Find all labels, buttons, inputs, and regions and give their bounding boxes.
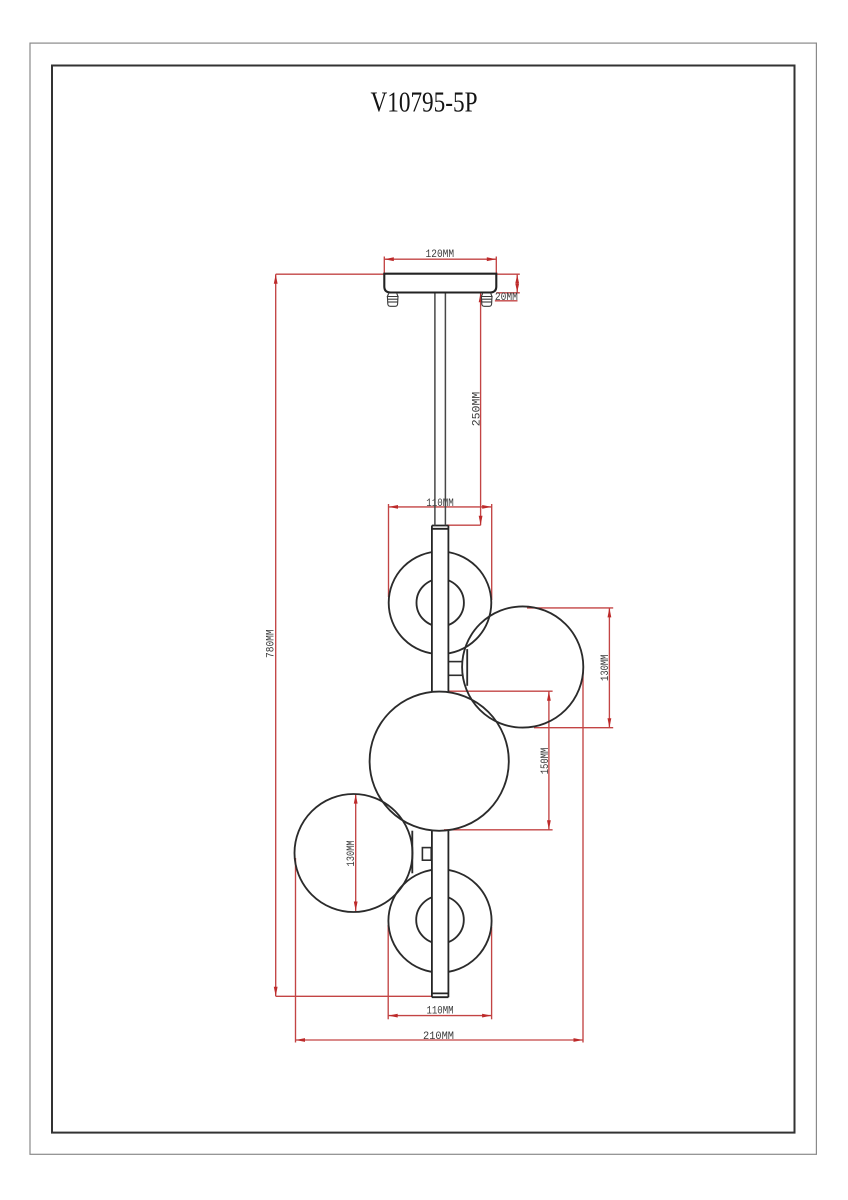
svg-text:210MM: 210MM bbox=[423, 1031, 454, 1043]
svg-text:V10795-5P: V10795-5P bbox=[371, 87, 478, 118]
svg-text:110MM: 110MM bbox=[427, 1006, 454, 1018]
svg-text:780MM: 780MM bbox=[265, 629, 277, 658]
svg-text:130MM: 130MM bbox=[346, 840, 358, 866]
svg-text:110MM: 110MM bbox=[426, 498, 454, 510]
svg-text:130MM: 130MM bbox=[600, 655, 612, 681]
svg-text:250MM: 250MM bbox=[472, 392, 484, 427]
svg-text:120MM: 120MM bbox=[426, 249, 455, 261]
svg-text:20MM: 20MM bbox=[495, 292, 518, 304]
svg-text:150MM: 150MM bbox=[540, 748, 552, 775]
